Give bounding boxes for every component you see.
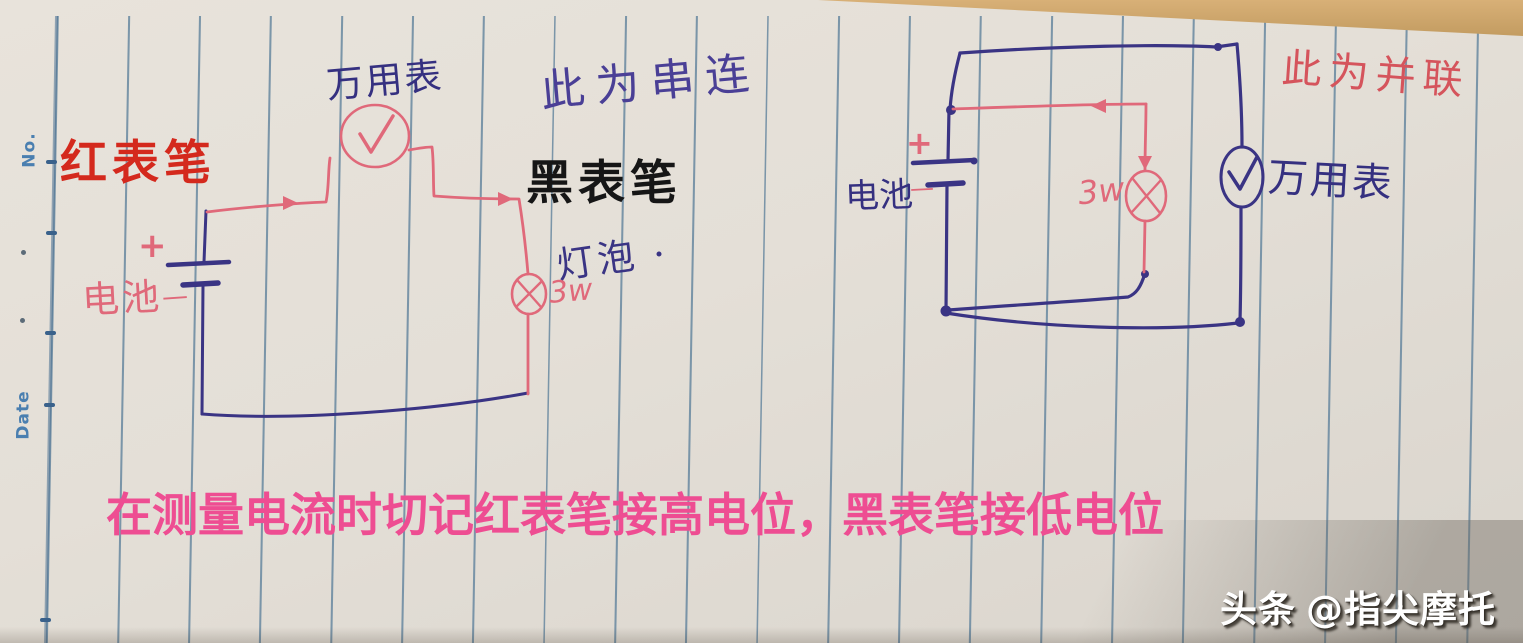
parallel-battery-minus-sign: — xyxy=(909,173,934,202)
series-multimeter-icon xyxy=(341,105,409,167)
series-bulb-power: 3w xyxy=(548,272,595,311)
watermark: 头条@指尖摩托 xyxy=(1220,579,1496,633)
parallel-wire-battery-bottom xyxy=(946,185,947,311)
series-bulb-x-icon xyxy=(517,281,541,307)
series-battery-plus-sign: + xyxy=(138,226,167,266)
red-probe-annotation: 红表笔 xyxy=(60,138,216,191)
junction-dot xyxy=(1235,317,1245,327)
series-wire-battery-top xyxy=(204,211,206,262)
parallel-battery-plus-sign: + xyxy=(906,124,933,162)
parallel-wire-bottom-outer xyxy=(946,313,1238,328)
parallel-wire-right-lower xyxy=(1240,207,1241,321)
parallel-bulb-x-icon xyxy=(1132,179,1161,213)
parallel-wire-bulb-return xyxy=(948,273,1145,310)
ink-dot xyxy=(657,252,662,257)
series-wire-bottom xyxy=(202,393,528,416)
series-battery-minus-sign: — xyxy=(161,281,189,313)
current-arrow-icon xyxy=(498,192,513,206)
parallel-wire-right-upper xyxy=(1237,44,1242,147)
junction-dot xyxy=(1214,43,1222,51)
current-arrow-icon xyxy=(283,196,298,210)
watermark-handle: @指尖摩托 xyxy=(1306,588,1496,631)
parallel-bulb-power: 3w xyxy=(1076,170,1126,213)
parallel-wire-left-top xyxy=(950,53,960,110)
series-wire-top-right xyxy=(409,147,528,274)
parallel-wire-top xyxy=(960,44,1237,53)
series-meter-label: 万用表 xyxy=(324,45,445,109)
series-wire-top-left xyxy=(207,158,330,212)
notebook-photo: No. Date xyxy=(0,0,1523,643)
series-wire-battery-bottom xyxy=(202,285,203,414)
current-arrow-icon xyxy=(1138,156,1152,170)
parallel-branch-wire-top xyxy=(953,104,1146,109)
black-probe-annotation: 黑表笔 xyxy=(526,158,682,211)
parallel-multimeter-check-icon xyxy=(1229,157,1257,189)
series-battery-long-plate xyxy=(168,262,229,265)
junction-dot xyxy=(971,158,978,165)
parallel-wire-to-battery xyxy=(948,110,949,161)
series-multimeter-check-icon xyxy=(360,116,393,152)
series-battery-short-plate xyxy=(183,283,218,285)
watermark-brand: 头条 xyxy=(1220,588,1296,631)
current-arrow-icon xyxy=(1091,99,1106,113)
series-battery-label: 电池 xyxy=(81,266,164,324)
parallel-branch-wire-bottom xyxy=(1144,221,1145,272)
junction-dot xyxy=(941,306,952,317)
parallel-meter-label: 万用表 xyxy=(1267,145,1396,210)
parallel-battery-label: 电池 xyxy=(844,167,914,218)
